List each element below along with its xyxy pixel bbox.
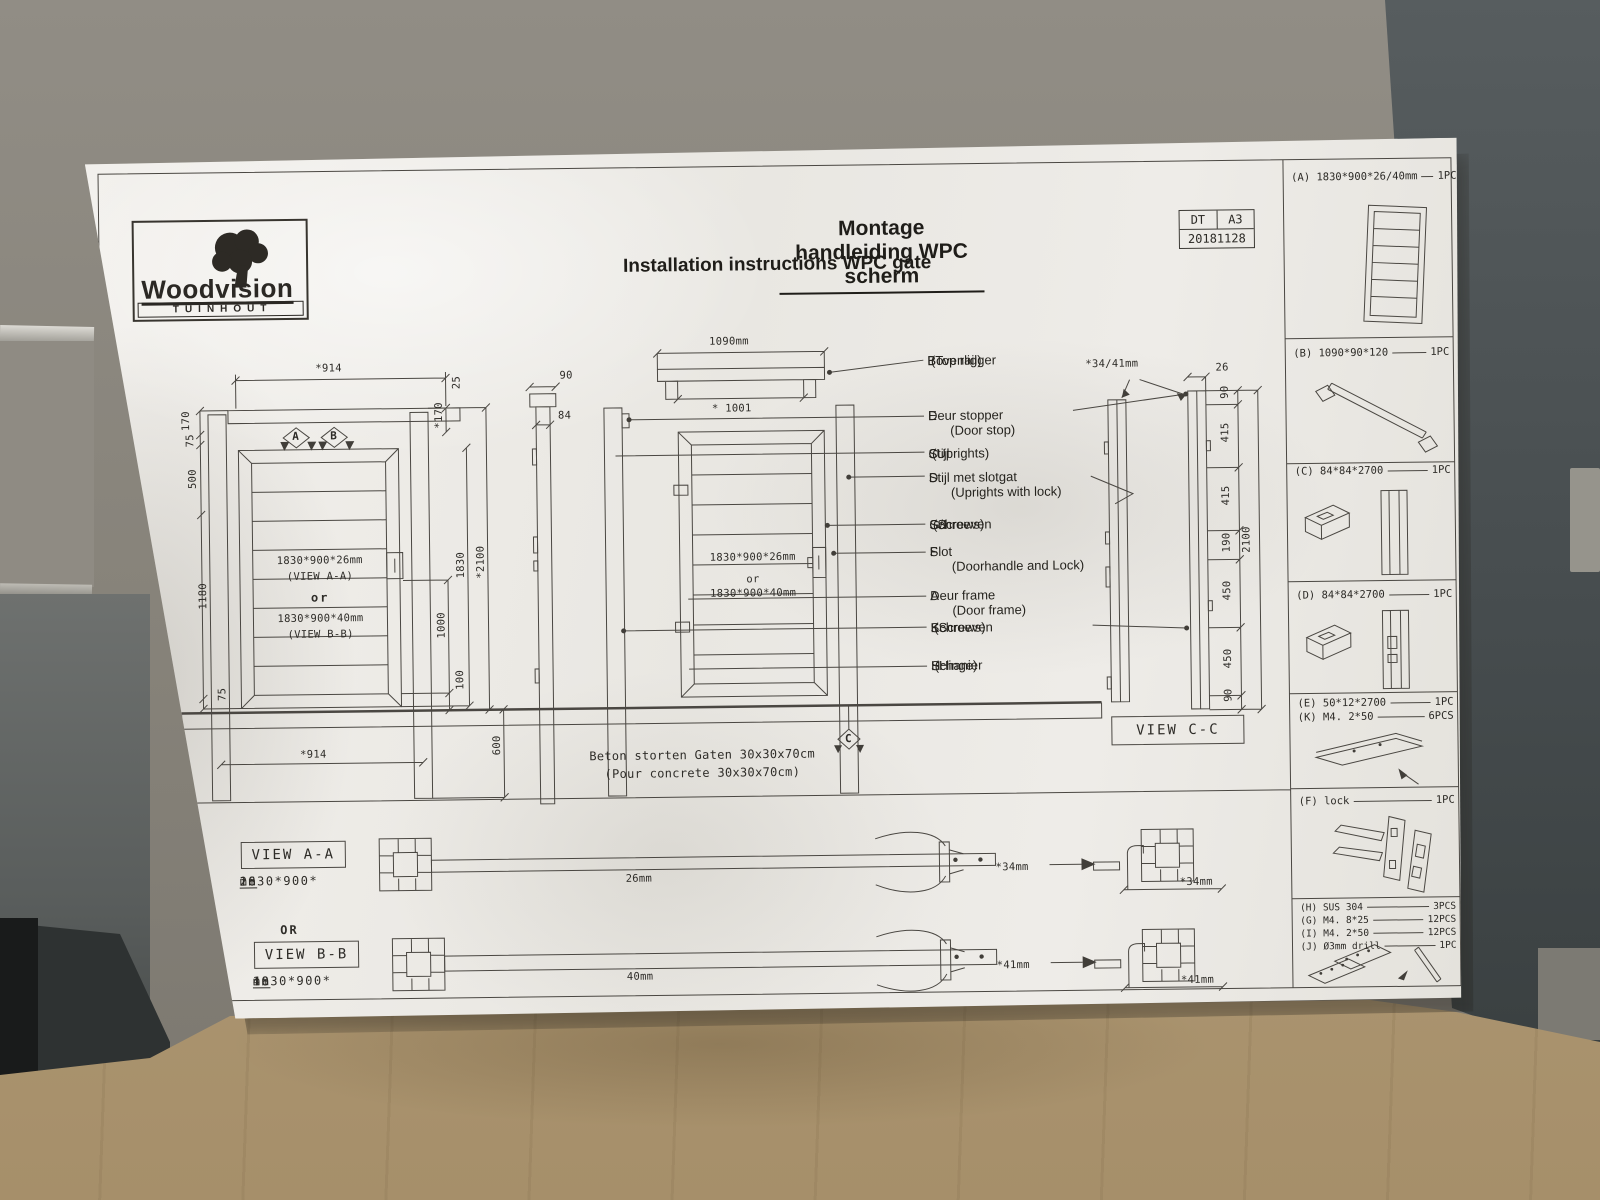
dim-label: *34/41mm: [1085, 359, 1138, 370]
dim-label: 2100: [1241, 526, 1252, 553]
dim-label: 1000: [436, 612, 447, 639]
upright-side-view: [526, 383, 565, 804]
part-row-i: (I) M4. 2*5012PCS: [1300, 927, 1456, 940]
part-f-lock-icon: [1333, 816, 1432, 893]
view-or: OR: [280, 924, 299, 936]
view-cc-title: VIEW C-C: [1112, 716, 1244, 744]
cabinet-face: [0, 341, 94, 587]
part-row-e: (E) 50*12*27001PC: [1297, 696, 1453, 710]
dim-label: 26mm: [626, 874, 653, 885]
dim-label: 190: [1221, 532, 1232, 552]
instruction-sheet: Woodvision TUINHOUT Montage handleiding …: [85, 138, 1467, 1021]
logo-tagline: TUINHOUT: [138, 301, 304, 318]
part-row-b: (B) 1090*90*1201PC: [1293, 346, 1449, 360]
view-bb-section: [254, 926, 1227, 1002]
concrete-note-en: (Pour concrete 30x30x70cm): [570, 765, 834, 780]
dim-label: 100: [455, 670, 466, 690]
panel-highlight-lower: [1538, 948, 1600, 1040]
dim-label: 500: [188, 469, 199, 489]
callout-leaders: [614, 357, 1191, 670]
door-or: or: [250, 591, 390, 605]
title-block-date: 20181128: [1180, 229, 1254, 248]
dim-label: 450: [1222, 580, 1233, 600]
part-row-k: (K) M4. 2*506PCS: [1298, 710, 1454, 724]
callout-lock-en: (Doorhandle and Lock): [952, 557, 1084, 574]
dim-label: *170: [434, 402, 445, 429]
dim-label: 1180: [198, 583, 209, 610]
callout-screws-gi: G/I Schroeven (Screws): [929, 517, 933, 532]
part-d-post-icon: [1306, 610, 1409, 689]
dim-label: 90: [1223, 688, 1234, 701]
part-row-h: (H) SUS 3043PCS: [1300, 901, 1456, 914]
door-size-26: 1830*900*26mm: [250, 555, 390, 567]
dim-label: 90: [1220, 385, 1231, 398]
door-view-bb-ref: (VIEW B-B): [251, 629, 391, 641]
part-row-d: (D) 84*84*27001PC: [1296, 588, 1452, 602]
part-row-c: (C) 84*84*27001PC: [1295, 464, 1451, 478]
dim-label: 90: [559, 370, 572, 381]
dim-label: 1090mm: [709, 336, 749, 347]
door-view-aa-ref: (VIEW A-A): [250, 571, 390, 583]
callout-door-stop-en: (Door stop): [950, 422, 1015, 438]
panel-highlight: [1570, 468, 1600, 572]
dim-label: 1830: [456, 552, 467, 579]
door-size-40: 1830*900*40mm: [250, 613, 390, 625]
part-e-strip-icon: [1316, 733, 1423, 785]
part-row-j: (J) Ø3mm drill1PC: [1300, 940, 1456, 953]
view-aa-section: [241, 828, 1226, 904]
title-block-code: DT: [1180, 211, 1217, 229]
title-block: DT A3 20181128: [1179, 209, 1255, 249]
dim-label: 600: [492, 735, 503, 755]
dim-label: 415: [1220, 422, 1231, 442]
callout-uprights: C Stijl (Uprights): [928, 446, 932, 461]
dim-label: 450: [1223, 648, 1234, 668]
marker-b: B: [330, 430, 337, 441]
part-c-post-icon: [1305, 490, 1408, 575]
view-aa-title: VIEW A-A: [241, 841, 345, 868]
mid-door-size-26: 1830*900*26mm: [693, 552, 813, 564]
dim-label: 75: [217, 688, 228, 701]
dim-label: *914: [300, 750, 327, 761]
dim-label: 26: [1215, 362, 1228, 373]
part-row-f: (F) lock1PC: [1299, 794, 1455, 808]
callout-door-frame-en: (Door frame): [952, 602, 1026, 618]
dim-label: *2100: [476, 546, 487, 579]
dim-label: *41mm: [997, 960, 1030, 971]
dim-label: *34mm: [1180, 877, 1213, 888]
view-bb-title: VIEW B-B: [254, 941, 358, 968]
dim-label: * 1001: [712, 403, 752, 414]
dim-label: *34mm: [995, 862, 1028, 873]
dim-label: 25: [451, 376, 462, 389]
marker-c: C: [845, 733, 852, 744]
woodvision-logo: Woodvision TUINHOUT: [132, 219, 309, 322]
part-a-panel-icon: [1364, 205, 1427, 323]
marker-a: A: [292, 431, 299, 442]
callout-top-rail: B Bovenligger (Top rail): [927, 353, 931, 368]
dim-label: *914: [315, 363, 342, 374]
section-view-cc: [1104, 372, 1267, 745]
dim-label: *41mm: [1181, 975, 1214, 986]
callout-uprights-lock-en: (Uprights with lock): [951, 484, 1062, 500]
dim-label: 40mm: [627, 972, 654, 983]
mid-door-size-40: 1830*900*40mm: [693, 588, 813, 600]
dim-label: 170: [181, 411, 192, 431]
part-row-a: (A) 1830*900*26/40mm1PC: [1291, 170, 1447, 184]
dim-label: 415: [1221, 485, 1232, 505]
part-b-rail-icon: [1316, 382, 1438, 453]
part-row-g: (G) M4. 8*2512PCS: [1300, 914, 1456, 927]
title-block-sheet: A3: [1216, 210, 1254, 228]
callout-hinge: H Schanier (Hinge): [931, 658, 935, 673]
dim-label: 75: [185, 434, 196, 447]
left-elevation: [195, 371, 508, 805]
dim-label: 84: [558, 410, 571, 421]
callout-screws-k: K Schroeven (Screws): [931, 620, 935, 635]
mid-door-or: or: [693, 574, 813, 586]
concrete-note-nl: Beton storten Gaten 30x30x70cm: [570, 747, 834, 762]
photo-of-instruction-sheet: Woodvision TUINHOUT Montage handleiding …: [0, 0, 1600, 1200]
ground-line: [182, 702, 1102, 729]
